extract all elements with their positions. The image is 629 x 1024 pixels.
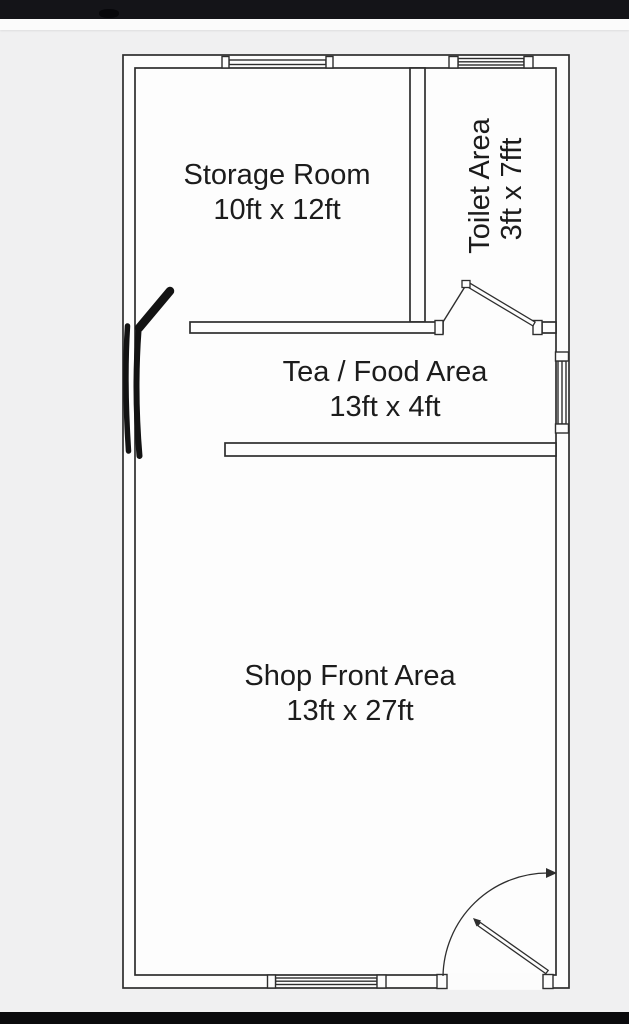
- toilet-area-dims: 3ft x 7fft: [496, 138, 528, 241]
- storage-room-dims: 10ft x 12ft: [213, 194, 340, 226]
- floor-plan: Storage Room 10ft x 12ft Toilet Area 3ft…: [0, 0, 629, 1024]
- partition-toilet-right-stub: [542, 322, 556, 333]
- partition-storage-tea: [190, 322, 443, 333]
- toilet-door-hinge: [462, 281, 470, 288]
- window-tea-right: [556, 352, 569, 433]
- bottom-letterbox-bar: [0, 1012, 629, 1024]
- tea-food-area-label: Tea / Food Area: [283, 356, 489, 388]
- shop-front-area-dims: 13ft x 27ft: [286, 695, 413, 727]
- screenshot-root: Storage Room 10ft x 12ft Toilet Area 3ft…: [0, 0, 629, 1024]
- storage-room-label: Storage Room: [184, 159, 371, 191]
- shop-front-area-label: Shop Front Area: [244, 660, 456, 692]
- marker-wall-stroke-left: [126, 326, 129, 451]
- tea-food-area-dims: 13ft x 4ft: [329, 391, 440, 423]
- marker-wall-stroke-right: [137, 331, 140, 456]
- partition-storage-toilet: [410, 68, 425, 322]
- toilet-area-label: Toilet Area: [464, 117, 496, 253]
- partition-tea-shop: [225, 443, 556, 456]
